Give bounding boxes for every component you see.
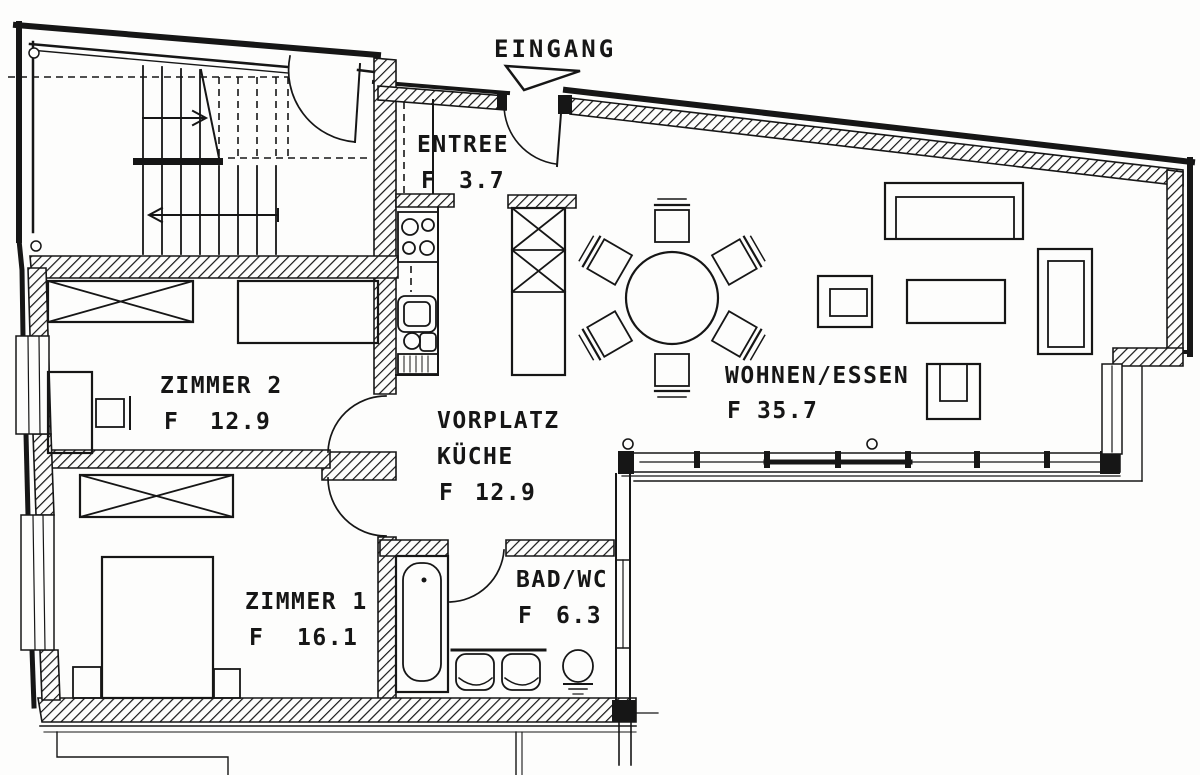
band-end-left bbox=[618, 451, 634, 474]
tall-cabinet-icon bbox=[512, 208, 565, 375]
toilet-icon bbox=[563, 650, 593, 694]
room-label: BAD/WC bbox=[516, 567, 608, 593]
stair-cut-line bbox=[201, 70, 219, 158]
stair-treads bbox=[8, 66, 370, 254]
window-zimmer2 bbox=[16, 336, 49, 434]
nightstand-icon bbox=[73, 667, 101, 698]
bed-icon bbox=[102, 557, 213, 698]
wardrobe-icon bbox=[48, 281, 193, 322]
area-prefix: F bbox=[727, 398, 742, 424]
area-value: 12.9 bbox=[475, 480, 536, 506]
wall-right bbox=[1167, 170, 1183, 352]
door-bath bbox=[450, 550, 504, 602]
wall-left-seg3 bbox=[40, 650, 60, 700]
wall-spine-lower bbox=[378, 537, 396, 702]
room-zimmer2: ZIMMER 2 F 12.9 bbox=[48, 281, 378, 453]
wall-stair-zimmer2 bbox=[30, 256, 398, 278]
area-prefix: F bbox=[439, 480, 454, 506]
area-value: 16.1 bbox=[297, 625, 358, 651]
room-label: WOHNEN/ESSEN bbox=[725, 363, 909, 389]
room-bad-wc: BAD/WC F 6.3 bbox=[396, 556, 608, 694]
area-value: 6.3 bbox=[556, 603, 602, 629]
lower-storey-outline bbox=[40, 722, 636, 775]
stair-top-inner-line bbox=[30, 44, 288, 67]
bed-icon bbox=[238, 281, 378, 343]
jamb-entrance-right bbox=[558, 95, 572, 114]
area-prefix: F bbox=[164, 409, 179, 435]
desk-chair-icon bbox=[96, 397, 130, 429]
dining-table-icon bbox=[626, 252, 718, 344]
room-label-line1: VORPLATZ bbox=[437, 408, 560, 434]
nightstand-icon bbox=[214, 669, 240, 698]
area-value: 3.7 bbox=[459, 168, 505, 194]
facade-left-seg3 bbox=[32, 650, 34, 706]
dishwasher-icon bbox=[398, 354, 438, 374]
dining-chair-icon bbox=[712, 234, 766, 285]
column-icon bbox=[623, 439, 633, 449]
area-value: 12.9 bbox=[210, 409, 271, 435]
window-band-living bbox=[618, 439, 1120, 476]
double-sink-icon bbox=[452, 650, 545, 690]
entrance-mark: EINGANG bbox=[494, 35, 616, 90]
facade-left-seg2 bbox=[26, 434, 28, 515]
door-entrance bbox=[504, 100, 562, 166]
facade-top-stair bbox=[16, 25, 378, 55]
dining-chair-icon bbox=[655, 354, 689, 397]
facade-living-top bbox=[566, 90, 1192, 162]
entrance-arrow-icon bbox=[506, 66, 580, 90]
wall-left-seg2 bbox=[33, 434, 54, 515]
dining-chair-icon bbox=[655, 199, 689, 242]
window-zimmer1 bbox=[21, 515, 54, 650]
wall-door-stub bbox=[322, 452, 396, 480]
window-strip-bath bbox=[612, 474, 658, 722]
wall-bottom bbox=[38, 698, 636, 722]
wall-anchor-icon bbox=[29, 48, 39, 58]
dining-chair-icon bbox=[578, 234, 632, 285]
wall-cabinet-stub bbox=[508, 195, 576, 208]
door-zimmer1 bbox=[328, 478, 386, 536]
sofa-icon bbox=[885, 183, 1023, 239]
walk-line-lower bbox=[150, 209, 278, 221]
area-value: 35.7 bbox=[757, 398, 818, 424]
door-zimmer2 bbox=[328, 396, 386, 452]
wall-bath-top-left bbox=[380, 540, 448, 556]
room-wohnen-essen: WOHNEN/ESSEN F 35.7 bbox=[578, 183, 1092, 424]
eingang-label: EINGANG bbox=[494, 35, 616, 63]
area-prefix: F bbox=[518, 603, 533, 629]
jamb-entrance-left bbox=[497, 92, 507, 110]
wall-junction-block bbox=[612, 700, 636, 722]
stair-top-inner-line2 bbox=[30, 50, 288, 73]
exterior-facade bbox=[16, 24, 1192, 706]
coffee-table-icon bbox=[907, 280, 1005, 323]
column-icon bbox=[867, 439, 877, 449]
bathtub-icon bbox=[396, 556, 448, 692]
wall-kitchen-stub bbox=[396, 194, 454, 207]
room-vorplatz-kueche: VORPLATZ KÜCHE F 12.9 bbox=[437, 408, 560, 506]
room-label: ENTREE bbox=[417, 132, 509, 158]
armchair-icon bbox=[818, 276, 872, 327]
room-zimmer1: ZIMMER 1 F 16.1 bbox=[73, 475, 368, 698]
floor-plan-scan: EINGANG ENTREE F 3.7 bbox=[0, 0, 1200, 775]
armchair-bottom-icon bbox=[927, 364, 980, 419]
wall-living-top bbox=[570, 98, 1183, 186]
wardrobe-icon bbox=[80, 475, 233, 517]
door-stairwell bbox=[289, 56, 360, 142]
facade-left-seg1 bbox=[19, 240, 23, 336]
stairwell bbox=[8, 42, 374, 254]
room-label: ZIMMER 2 bbox=[160, 373, 283, 399]
sofa-right-icon bbox=[1038, 249, 1092, 354]
kitchen-fixtures bbox=[396, 208, 565, 375]
wall-bath-top-right bbox=[506, 540, 614, 556]
treads-solid-right bbox=[219, 166, 276, 254]
room-label-line2: KÜCHE bbox=[437, 442, 514, 470]
stair-landing-bar bbox=[133, 158, 223, 165]
window-right-living bbox=[1102, 364, 1122, 454]
wall-right-step bbox=[1113, 348, 1183, 366]
desk-icon bbox=[48, 372, 92, 453]
room-label: ZIMMER 1 bbox=[245, 589, 368, 615]
floor-plan: EINGANG ENTREE F 3.7 bbox=[0, 0, 1200, 775]
area-prefix: F bbox=[249, 625, 264, 651]
area-prefix: F bbox=[421, 168, 436, 194]
stove-icon bbox=[398, 212, 438, 262]
dining-chair-icon bbox=[712, 311, 766, 362]
kitchen-counter bbox=[396, 208, 438, 375]
treads-dashed bbox=[219, 77, 276, 158]
dining-chair-icon bbox=[578, 311, 632, 362]
wall-anchor-icon bbox=[31, 241, 41, 251]
sink-icon bbox=[398, 296, 436, 351]
room-entree: ENTREE F 3.7 bbox=[404, 100, 509, 194]
